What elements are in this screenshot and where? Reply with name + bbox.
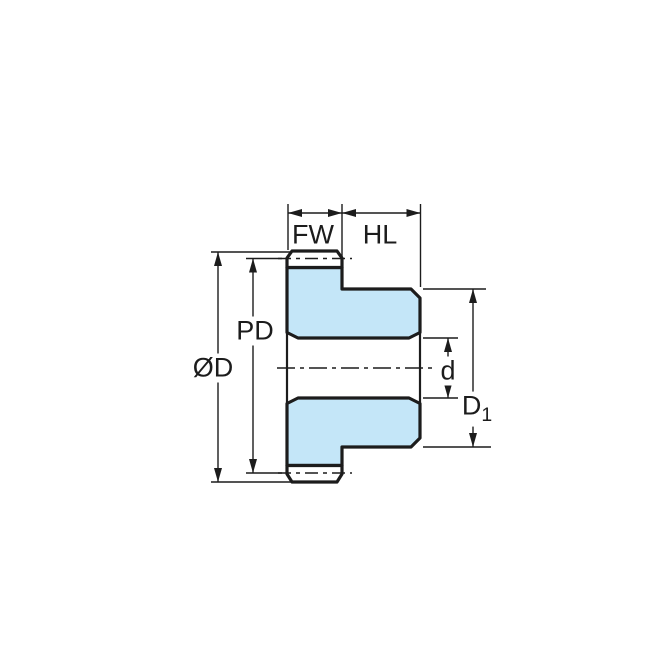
gear-section-drawing: [0, 0, 670, 670]
hub-length-label: HL: [363, 222, 398, 249]
gear-body: [287, 268, 420, 466]
bore-diameter-label: d: [437, 357, 458, 386]
pitch-diameter-label: PD: [233, 317, 277, 346]
hub-diameter-label-base: D: [462, 391, 482, 421]
outer-diameter-label: ØD: [190, 354, 237, 383]
gear-dimension-diagram: FW HL PD ØD d D1: [0, 0, 670, 670]
dim-pd: [246, 259, 282, 474]
gear-body-upper: [287, 268, 420, 339]
hub-diameter-label: D1: [459, 392, 495, 427]
face-width-label: FW: [292, 222, 334, 249]
gear-body-lower: [287, 398, 420, 466]
hub-diameter-label-subscript: 1: [481, 404, 492, 426]
gear-tooth-top: [287, 251, 342, 268]
gear-tooth-bottom: [287, 466, 342, 483]
